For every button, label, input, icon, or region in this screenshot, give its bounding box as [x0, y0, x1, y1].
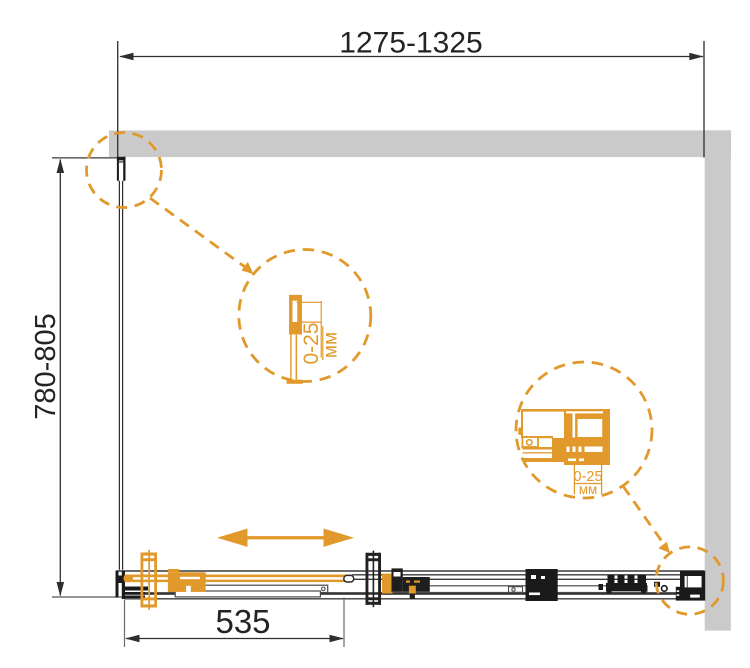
svg-text:мм: мм [579, 482, 598, 497]
svg-text:мм: мм [321, 332, 342, 358]
svg-text:535: 535 [215, 603, 270, 640]
svg-text:1275-1325: 1275-1325 [339, 26, 482, 59]
svg-text:780-805: 780-805 [30, 313, 62, 419]
